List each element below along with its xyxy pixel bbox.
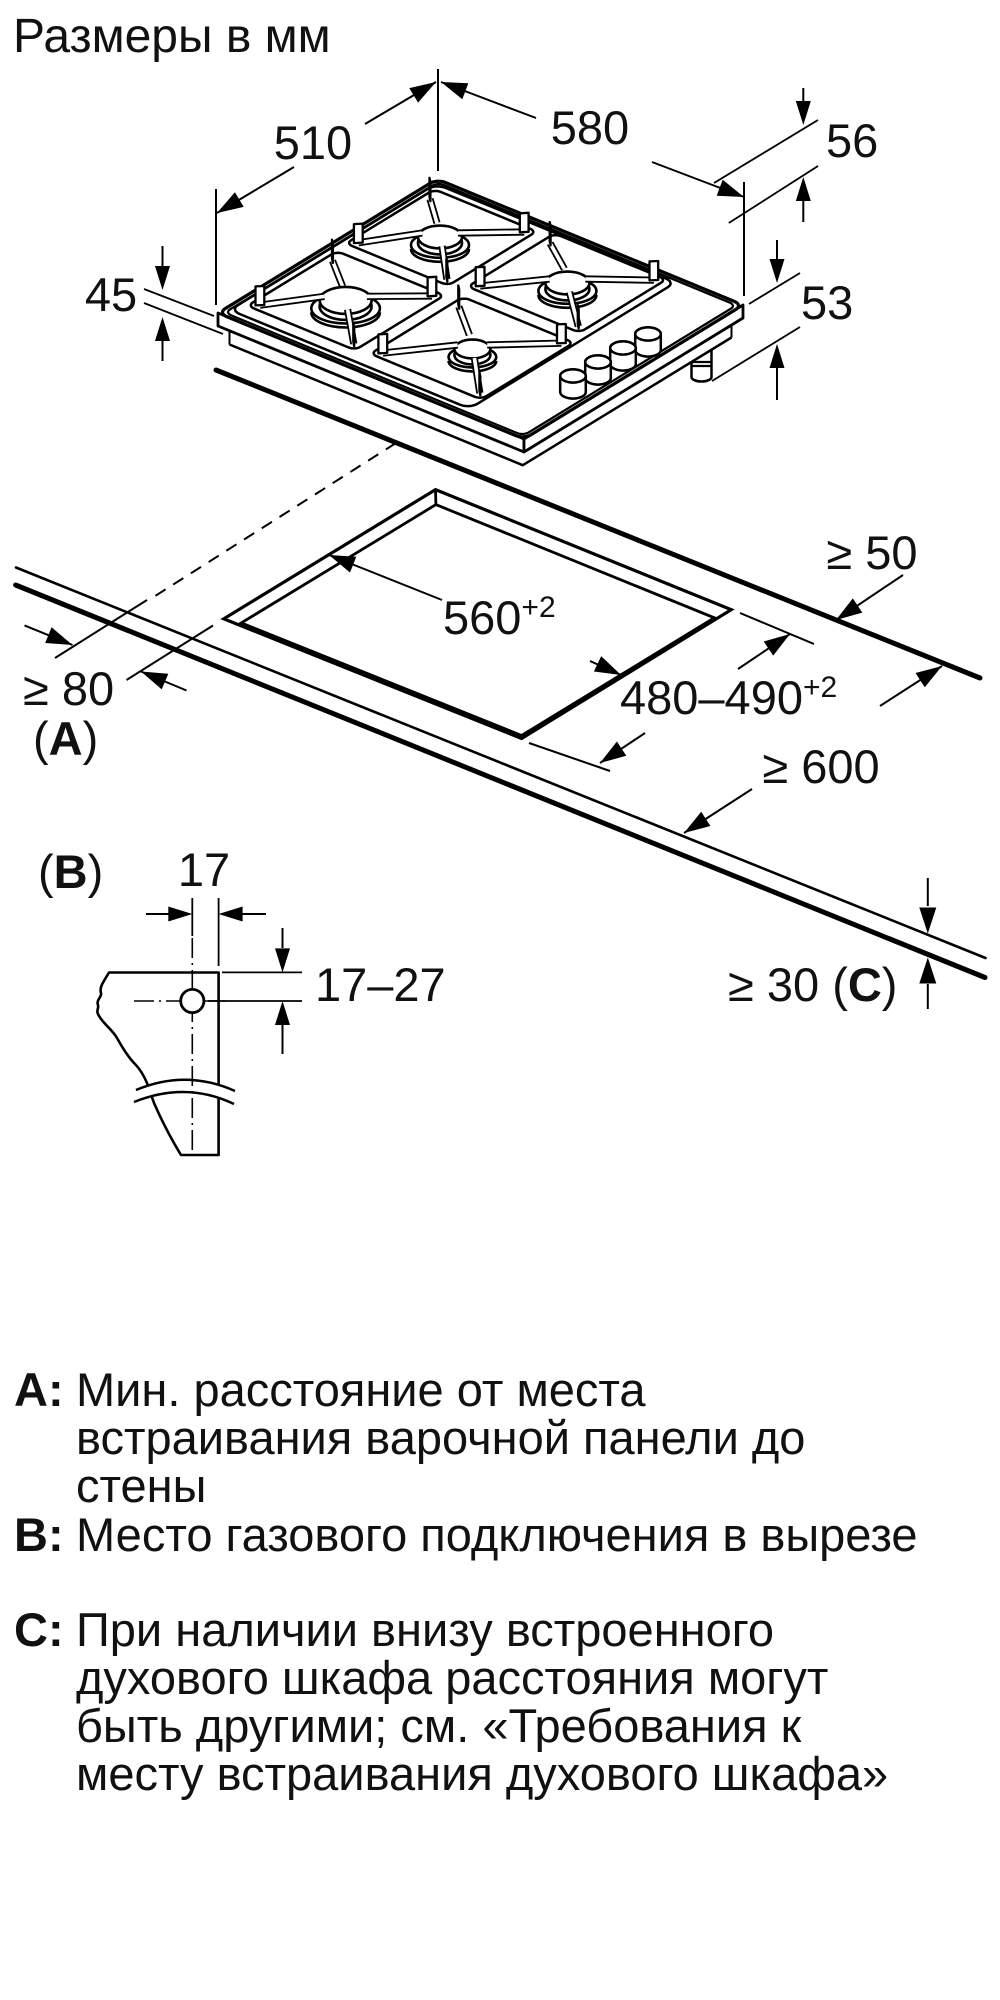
svg-text:56: 56 (826, 114, 878, 167)
svg-text:53: 53 (801, 276, 853, 329)
svg-text:17: 17 (178, 843, 230, 896)
svg-text:17–27: 17–27 (315, 958, 446, 1011)
svg-text:≥ 600: ≥ 600 (762, 740, 879, 793)
svg-text:≥ 50: ≥ 50 (826, 526, 917, 579)
svg-text:580: 580 (551, 101, 629, 154)
svg-text:Мин. расстояние от места: Мин. расстояние от места (76, 1363, 646, 1416)
svg-text:A:: A: (14, 1363, 64, 1416)
svg-text:Место газового подключения в в: Место газового подключения в вырезе (76, 1508, 918, 1561)
svg-text:стены: стены (76, 1459, 206, 1512)
svg-text:C:: C: (14, 1603, 64, 1656)
svg-text:45: 45 (85, 268, 137, 321)
svg-text:Размеры в мм: Размеры в мм (13, 10, 331, 63)
svg-text:встраивания варочной панели до: встраивания варочной панели до (76, 1411, 805, 1464)
svg-text:духового шкафа расстояния могу: духового шкафа расстояния могут (76, 1651, 828, 1704)
svg-text:510: 510 (274, 116, 352, 169)
svg-text:≥ 30 (C): ≥ 30 (C) (728, 958, 897, 1011)
svg-text:(A): (A) (33, 712, 98, 765)
svg-text:(B): (B) (38, 845, 103, 898)
svg-text:480–490+2: 480–490+2 (620, 671, 837, 724)
svg-text:B:: B: (14, 1508, 64, 1561)
svg-text:560+2: 560+2 (443, 591, 556, 644)
svg-text:≥ 80: ≥ 80 (23, 662, 114, 715)
svg-text:При наличии внизу встроенного: При наличии внизу встроенного (76, 1603, 774, 1656)
svg-text:быть другими; см. «Требования: быть другими; см. «Требования к (76, 1699, 802, 1752)
svg-text:месту встраивания духового шка: месту встраивания духового шкафа» (76, 1747, 888, 1800)
